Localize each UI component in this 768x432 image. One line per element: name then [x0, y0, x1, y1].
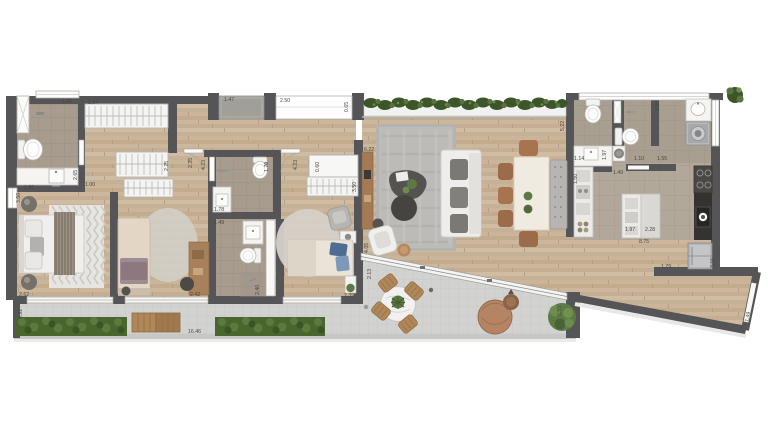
svg-text:4.23: 4.23: [293, 160, 299, 170]
svg-text:1.49: 1.49: [613, 170, 623, 176]
svg-text:4.23: 4.23: [201, 160, 207, 170]
svg-text:0.60: 0.60: [315, 162, 321, 172]
svg-text:1.97: 1.97: [602, 150, 608, 160]
svg-text:8.75: 8.75: [639, 239, 649, 245]
svg-text:1.90: 1.90: [24, 185, 34, 191]
svg-text:1.88: 1.88: [655, 101, 661, 111]
svg-text:0.92: 0.92: [18, 309, 24, 319]
svg-text:2.35: 2.35: [188, 158, 194, 168]
svg-text:2.54: 2.54: [88, 100, 98, 106]
svg-text:1.47: 1.47: [224, 97, 234, 103]
svg-text:1.97: 1.97: [625, 227, 635, 233]
svg-text:5.22: 5.22: [560, 121, 566, 131]
svg-text:1.50: 1.50: [573, 174, 579, 184]
svg-text:3.50: 3.50: [352, 182, 358, 192]
svg-text:6.22: 6.22: [364, 147, 374, 153]
svg-text:3.16: 3.16: [710, 258, 716, 268]
svg-text:2.25: 2.25: [164, 161, 170, 171]
svg-text:4.05: 4.05: [364, 243, 370, 253]
svg-text:1.42: 1.42: [62, 99, 72, 105]
svg-text:1.00: 1.00: [85, 182, 95, 188]
svg-text:2.40: 2.40: [255, 285, 261, 295]
svg-text:1.78: 1.78: [214, 207, 224, 213]
svg-text:2.65: 2.65: [73, 170, 79, 180]
svg-text:1.10: 1.10: [634, 156, 644, 162]
svg-text:1.79: 1.79: [661, 264, 671, 270]
svg-text:2.42: 2.42: [190, 292, 200, 298]
svg-text:1.70: 1.70: [264, 162, 270, 172]
svg-text:2.13: 2.13: [367, 269, 373, 279]
svg-text:16.46: 16.46: [188, 329, 201, 335]
svg-text:1.14: 1.14: [574, 156, 584, 162]
svg-text:2.39: 2.39: [344, 293, 354, 299]
svg-text:2.62: 2.62: [19, 292, 29, 298]
svg-text:2.50: 2.50: [280, 98, 290, 104]
svg-text:0.95: 0.95: [557, 306, 563, 316]
svg-text:1.55: 1.55: [657, 156, 667, 162]
svg-text:1.49: 1.49: [214, 220, 224, 226]
svg-text:2.28: 2.28: [645, 227, 655, 233]
svg-text:3.50: 3.50: [16, 193, 22, 203]
svg-text:0.65: 0.65: [344, 102, 350, 112]
